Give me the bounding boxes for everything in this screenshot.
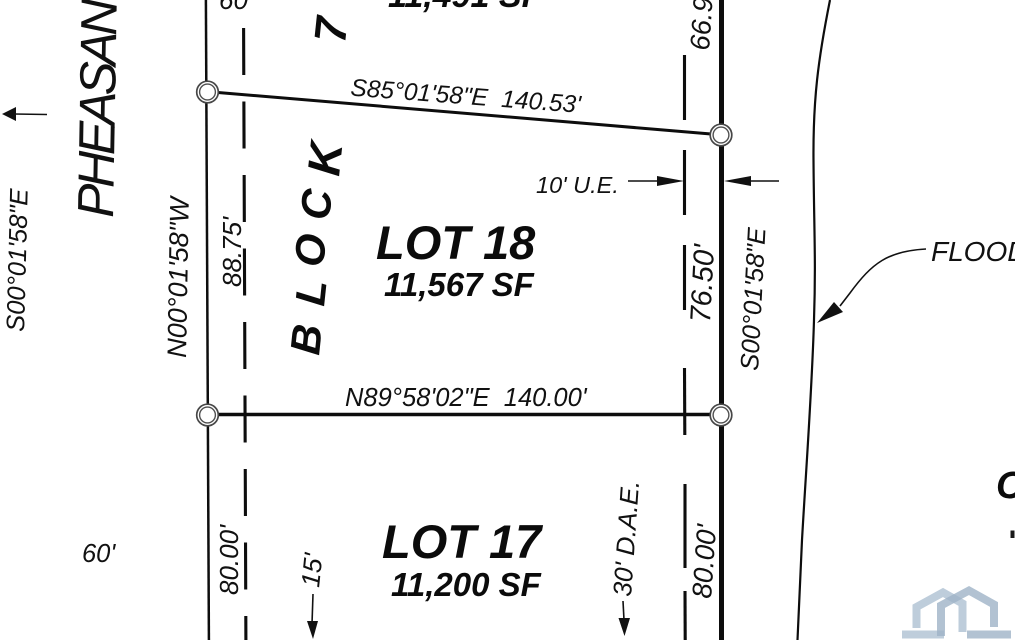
svg-text:O: O — [285, 232, 335, 269]
svg-text:L: L — [286, 278, 335, 308]
svg-text:10' U.E.: 10' U.E. — [536, 172, 619, 198]
svg-text:15': 15' — [295, 551, 328, 589]
svg-text:N00°01'58"W: N00°01'58"W — [162, 194, 195, 358]
svg-text:11,200 SF: 11,200 SF — [391, 566, 542, 603]
svg-text:80.00': 80.00' — [686, 522, 722, 600]
svg-text:N89°58'02"E 140.00': N89°58'02"E 140.00' — [345, 384, 588, 412]
svg-text:80.00': 80.00' — [214, 524, 244, 595]
svg-text:60': 60' — [82, 540, 116, 568]
svg-text:11,567 SF: 11,567 SF — [384, 266, 535, 303]
svg-text:PHEASANT: PHEASANT — [67, 0, 128, 218]
svg-text:B: B — [281, 322, 331, 357]
svg-text:C: C — [996, 465, 1015, 507]
svg-text:11,491 SF: 11,491 SF — [388, 0, 544, 15]
svg-text:88.75': 88.75' — [217, 216, 247, 287]
svg-text:60': 60' — [219, 0, 254, 15]
svg-text:S00°01'58"E: S00°01'58"E — [2, 187, 34, 332]
svg-text:LOT 17: LOT 17 — [382, 515, 543, 568]
svg-text:66.99': 66.99' — [684, 0, 720, 51]
svg-text:LOT 18: LOT 18 — [376, 216, 536, 269]
svg-text:C: C — [291, 186, 341, 222]
svg-text:76.50': 76.50' — [685, 242, 721, 323]
svg-text:FLOODWAY: FLOODWAY — [931, 236, 1015, 267]
